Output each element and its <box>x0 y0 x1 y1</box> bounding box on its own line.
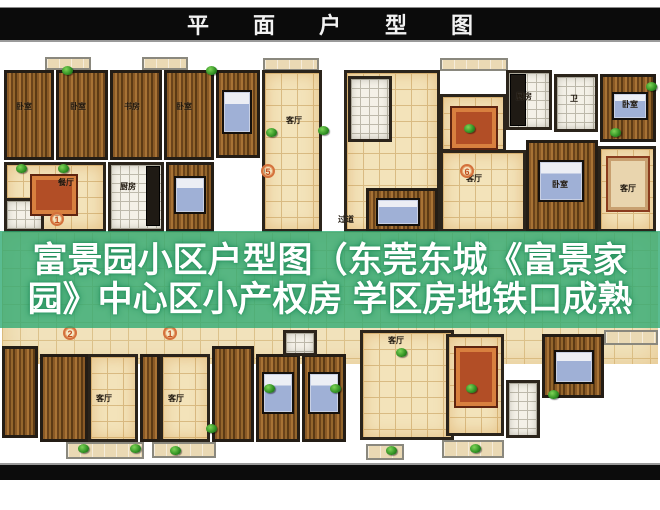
plant-icon <box>16 164 27 173</box>
plant-icon <box>206 66 217 75</box>
bed-furniture <box>554 350 594 384</box>
plant-icon <box>58 164 69 173</box>
room-label: 客厅 <box>620 184 636 193</box>
plant-icon <box>318 126 329 135</box>
floor-plan-title-banner: 平面户型图 <box>0 7 660 42</box>
plant-icon <box>266 128 277 137</box>
screenshot-page: 平面户型图 卧室卧室书房卧室餐厅厨房客厅过道厨房卫卧室客厅卧室客厅客厅客厅客厅5… <box>0 0 660 510</box>
unit-number-marker: 6 <box>460 164 474 178</box>
bed-furniture <box>222 90 252 134</box>
plant-icon <box>646 82 657 91</box>
balcony <box>152 442 216 458</box>
plant-icon <box>170 446 181 455</box>
balcony <box>142 57 188 70</box>
table-furniture <box>454 346 498 408</box>
room-wood-floor <box>110 70 162 160</box>
room-tiled <box>262 70 322 232</box>
room-wood-floor <box>40 354 88 442</box>
room-label: 书房 <box>124 102 140 111</box>
room-label: 卧室 <box>70 102 86 111</box>
unit-number-marker: 1 <box>50 212 64 226</box>
room-label: 客厅 <box>168 394 184 403</box>
room-label: 厨房 <box>516 92 532 101</box>
balcony <box>604 330 658 345</box>
kitchen-counter <box>146 166 160 226</box>
room-label: 餐厅 <box>58 178 74 187</box>
listing-title-line-2: 园》中心区小产权房 学区房地铁口成熟 <box>28 280 633 319</box>
plant-icon <box>466 384 477 393</box>
room-wood-floor <box>164 70 214 160</box>
room-tiled <box>360 330 454 440</box>
balcony <box>366 444 404 460</box>
room-white-tile <box>506 380 540 438</box>
plant-icon <box>386 446 397 455</box>
plant-icon <box>206 424 217 433</box>
room-label: 卧室 <box>622 100 638 109</box>
room-label: 厨房 <box>120 182 136 191</box>
plant-icon <box>610 128 621 137</box>
room-wood-floor <box>140 354 160 442</box>
plant-icon <box>264 384 275 393</box>
room-wood-floor <box>2 346 38 438</box>
room-label: 客厅 <box>388 336 404 345</box>
plant-icon <box>396 348 407 357</box>
plant-icon <box>548 390 559 399</box>
room-label: 客厅 <box>286 116 302 125</box>
room-label: 卫 <box>570 94 578 103</box>
room-wood-floor <box>56 70 108 160</box>
room-tiled <box>440 150 526 232</box>
unit-number-marker: 1 <box>163 326 177 340</box>
bed-furniture <box>308 372 340 414</box>
bed-furniture <box>376 198 420 226</box>
unit-number-marker: 5 <box>261 164 275 178</box>
room-label: 卧室 <box>552 180 568 189</box>
plant-icon <box>78 444 89 453</box>
plant-icon <box>464 124 475 133</box>
bed-furniture <box>174 176 206 214</box>
room-white-tile <box>283 330 317 356</box>
bed-furniture <box>262 372 294 414</box>
plant-icon <box>470 444 481 453</box>
plant-icon <box>130 444 141 453</box>
room-label: 卧室 <box>176 102 192 111</box>
room-wood-floor <box>4 70 54 160</box>
room-label: 过道 <box>338 215 354 224</box>
room-white-tile <box>348 76 392 142</box>
room-white-tile <box>554 74 598 132</box>
plant-icon <box>330 384 341 393</box>
room-wood-floor <box>212 346 254 442</box>
balcony <box>440 58 508 71</box>
room-label: 客厅 <box>96 394 112 403</box>
bottom-black-bar <box>0 463 660 480</box>
listing-title-overlay: 富景园小区户型图（东莞东城《富景家 园》中心区小产权房 学区房地铁口成熟 <box>0 231 660 328</box>
plant-icon <box>62 66 73 75</box>
listing-title-line-1: 富景园小区户型图（东莞东城《富景家 <box>32 241 627 280</box>
unit-number-marker: 2 <box>63 326 77 340</box>
floor-plan-title: 平面户型图 <box>143 8 517 40</box>
room-label: 卧室 <box>16 102 32 111</box>
